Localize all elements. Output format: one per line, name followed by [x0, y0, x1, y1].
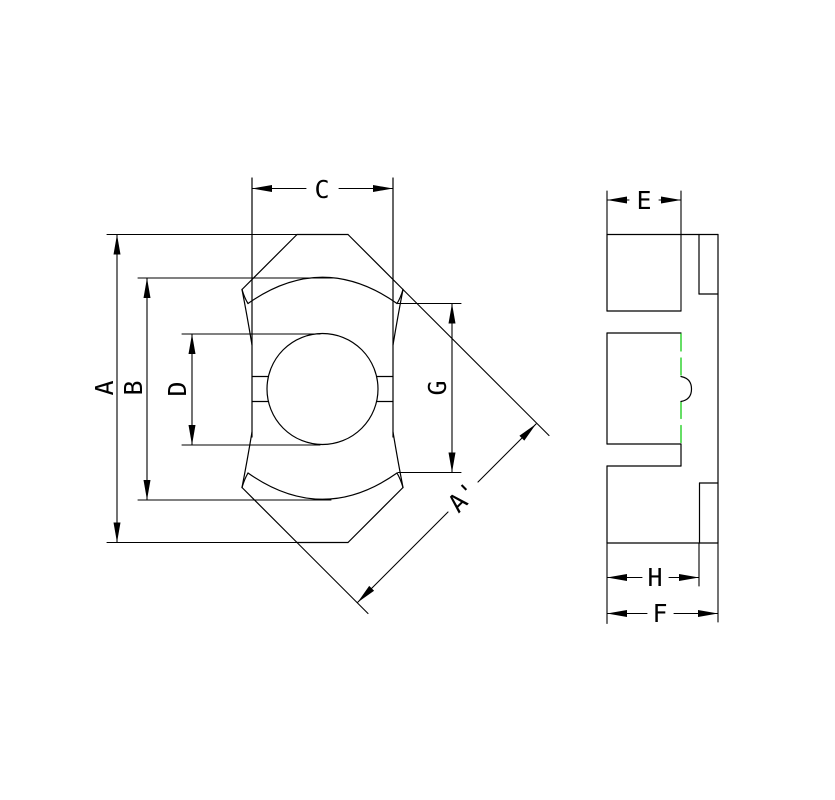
arrowhead	[607, 574, 627, 581]
thread-hole-circle	[267, 334, 378, 445]
arrowhead	[189, 334, 196, 354]
arrowhead	[449, 453, 456, 473]
arrowhead	[449, 304, 456, 324]
dimension-label-c: C	[314, 175, 329, 204]
arrowhead	[358, 586, 375, 603]
chamfer-top-right	[348, 235, 403, 290]
arrowhead	[698, 610, 718, 617]
thread-bump-arc	[681, 377, 692, 402]
arrowhead	[679, 574, 699, 581]
dimension-label-a: A	[90, 380, 119, 395]
arrowhead	[144, 480, 151, 500]
top-crown-arc	[248, 277, 397, 303]
drawing-page: A B D C G A' E H F	[0, 0, 835, 800]
arrowhead	[661, 197, 681, 204]
dimension-label-d: D	[163, 381, 192, 396]
dimension-A-prime	[297, 290, 549, 614]
dimension-arrows	[114, 185, 719, 617]
arrowhead	[252, 185, 272, 192]
dimension-label-g: G	[423, 380, 452, 395]
drawing-canvas: A B D C G A' E H F	[0, 0, 835, 800]
front-view	[242, 178, 403, 543]
dimension-label-f: F	[652, 599, 667, 628]
side-outline	[607, 235, 718, 544]
chamfer-top-left	[242, 235, 297, 290]
dimension-label-h: H	[647, 563, 662, 592]
arrowhead	[373, 185, 393, 192]
arrowhead	[607, 610, 627, 617]
arrowhead	[519, 424, 536, 441]
dimension-label-a-prime: A'	[442, 476, 484, 518]
arrowhead	[114, 235, 121, 255]
side-grooves	[607, 235, 718, 544]
arrowhead	[114, 523, 121, 543]
arrowhead	[607, 197, 627, 204]
bottom-crown-arc	[248, 473, 397, 499]
dimension-label-b: B	[119, 380, 148, 395]
dimension-label-e: E	[636, 186, 651, 215]
chamfer-bottom-right	[348, 488, 403, 543]
arrowhead	[144, 278, 151, 298]
side-view	[607, 235, 718, 544]
front-outline	[242, 178, 403, 543]
chamfer-bottom-left	[242, 488, 297, 543]
arrowhead	[189, 425, 196, 445]
dimension-D	[182, 334, 320, 445]
weld-tabs	[252, 377, 393, 402]
